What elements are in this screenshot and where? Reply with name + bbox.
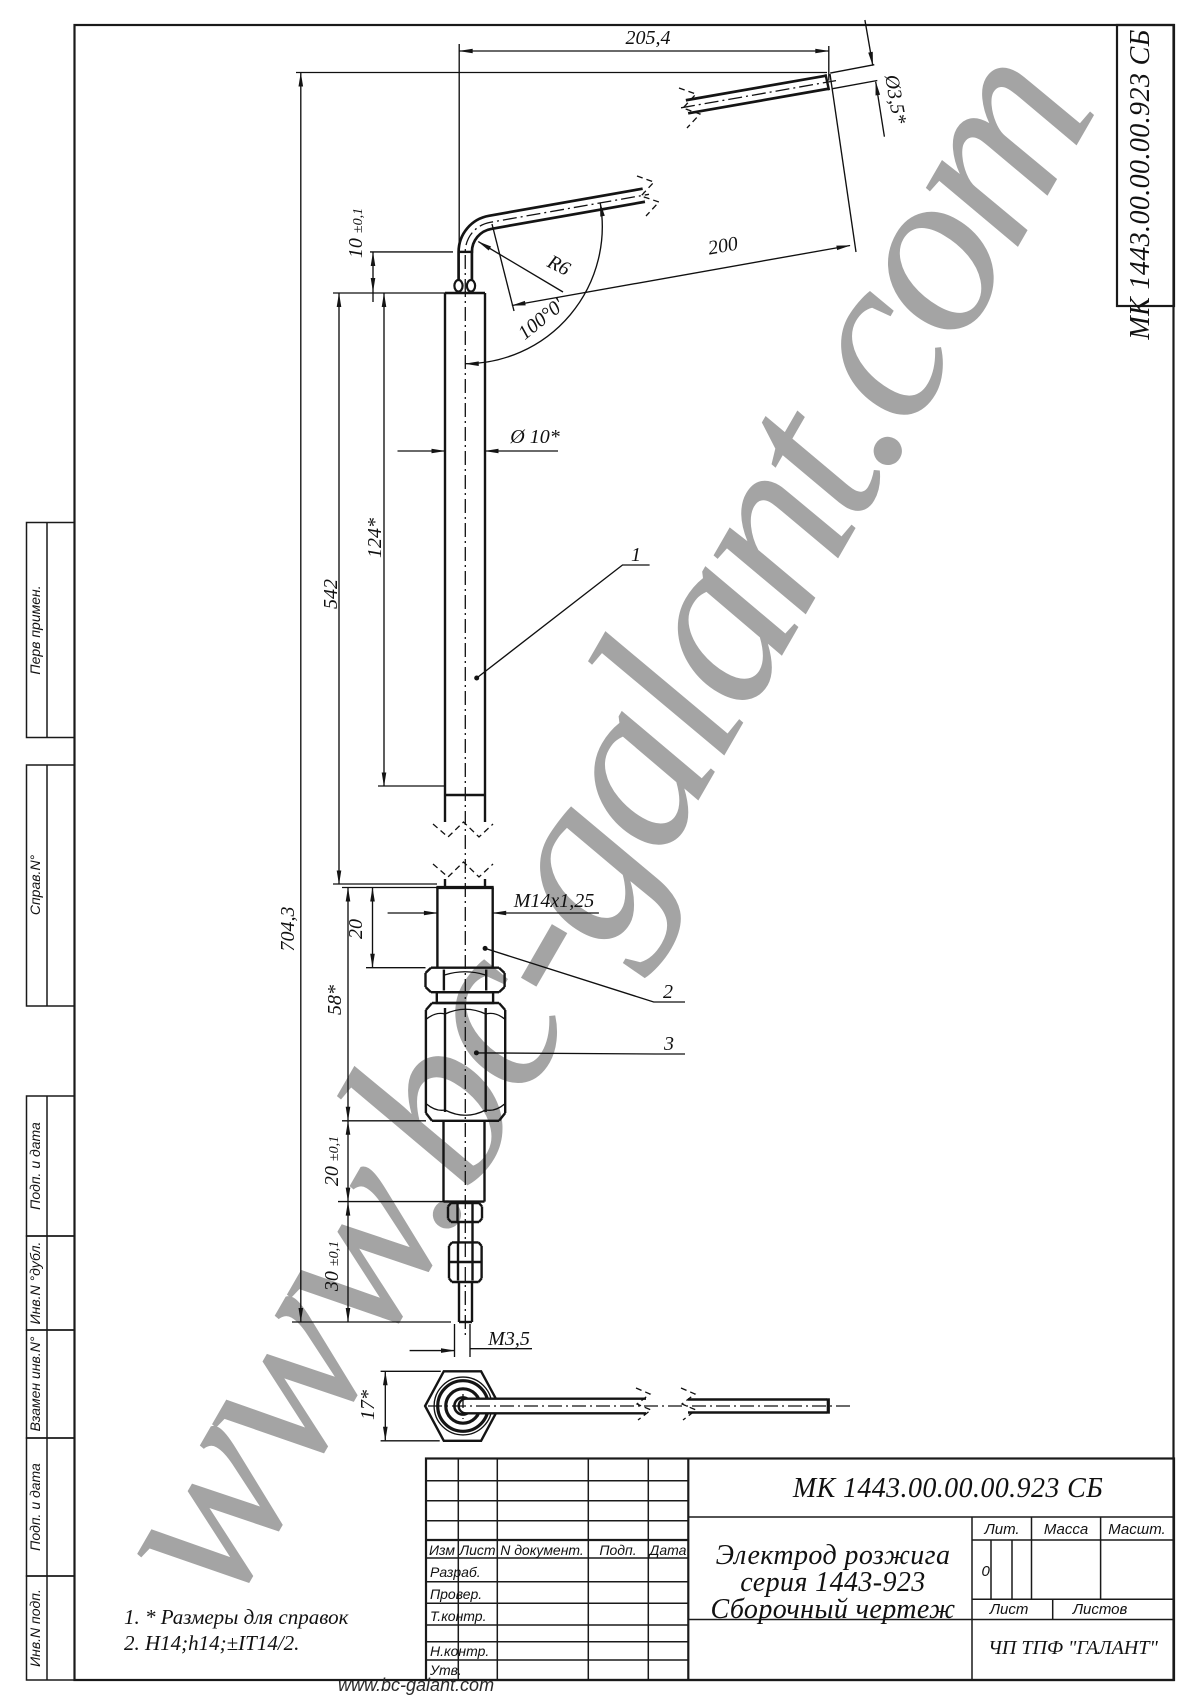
svg-text:542: 542 bbox=[320, 579, 342, 609]
svg-text:МК 1443.00.00.00.923 СБ: МК 1443.00.00.00.923 СБ bbox=[1125, 29, 1156, 340]
svg-text:17*: 17* bbox=[357, 1390, 379, 1420]
svg-text:1. * Размеры для справок: 1. * Размеры для справок bbox=[124, 1605, 349, 1629]
svg-text:Подп.: Подп. bbox=[599, 1542, 636, 1558]
svg-text:Масшт.: Масшт. bbox=[1108, 1521, 1165, 1538]
svg-text:Подп. и дата: Подп. и дата bbox=[27, 1122, 43, 1210]
svg-text:Провер.: Провер. bbox=[430, 1586, 482, 1602]
svg-text:Подп. и дата: Подп. и дата bbox=[27, 1463, 43, 1551]
svg-text:Лит.: Лит. bbox=[983, 1521, 1019, 1538]
svg-text:Разраб.: Разраб. bbox=[430, 1564, 481, 1580]
svg-text:Н.контр.: Н.контр. bbox=[430, 1643, 489, 1659]
svg-text:Инв.N °дубл.: Инв.N °дубл. bbox=[27, 1242, 43, 1325]
svg-text:Перв примен.: Перв примен. bbox=[27, 585, 43, 674]
svg-text:M3,5: M3,5 bbox=[487, 1328, 530, 1350]
svg-text:www.bc-galant.com: www.bc-galant.com bbox=[338, 1675, 494, 1695]
svg-text:205,4: 205,4 bbox=[626, 27, 671, 49]
svg-text:Ø 10*: Ø 10* bbox=[509, 426, 559, 448]
svg-text:МК 1443.00.00.00.923 СБ: МК 1443.00.00.00.923 СБ bbox=[792, 1473, 1103, 1504]
svg-text:58*: 58* bbox=[324, 985, 346, 1015]
svg-text:Лист: Лист bbox=[989, 1601, 1029, 1618]
svg-text:1: 1 bbox=[631, 544, 641, 566]
svg-text:Изм: Изм bbox=[429, 1542, 455, 1558]
svg-text:Масса: Масса bbox=[1044, 1521, 1088, 1538]
svg-text:Инв.N подп.: Инв.N подп. bbox=[27, 1589, 43, 1667]
svg-text:3: 3 bbox=[663, 1033, 674, 1055]
svg-text:Т.контр.: Т.контр. bbox=[430, 1608, 486, 1624]
svg-text:704,3: 704,3 bbox=[277, 907, 299, 952]
svg-text:Справ.N°: Справ.N° bbox=[27, 854, 43, 915]
svg-text:Взамен инв.N°: Взамен инв.N° bbox=[27, 1336, 43, 1431]
svg-text:Сборочный чертеж: Сборочный чертеж bbox=[711, 1594, 956, 1625]
svg-text:2: 2 bbox=[663, 981, 673, 1003]
svg-text:M14x1,25: M14x1,25 bbox=[513, 890, 595, 912]
svg-text:Листов: Листов bbox=[1072, 1601, 1128, 1618]
svg-text:124*: 124* bbox=[364, 518, 386, 558]
svg-text:N документ.: N документ. bbox=[500, 1542, 584, 1558]
svg-text:ЧП ТПФ "ГАЛАНТ": ЧП ТПФ "ГАЛАНТ" bbox=[988, 1637, 1158, 1659]
svg-text:Дата: Дата bbox=[648, 1542, 687, 1558]
svg-text:Лист: Лист bbox=[458, 1542, 495, 1558]
svg-text:2. H14;h14;±IT14/2.: 2. H14;h14;±IT14/2. bbox=[124, 1631, 299, 1655]
svg-text:0: 0 bbox=[982, 1563, 991, 1580]
